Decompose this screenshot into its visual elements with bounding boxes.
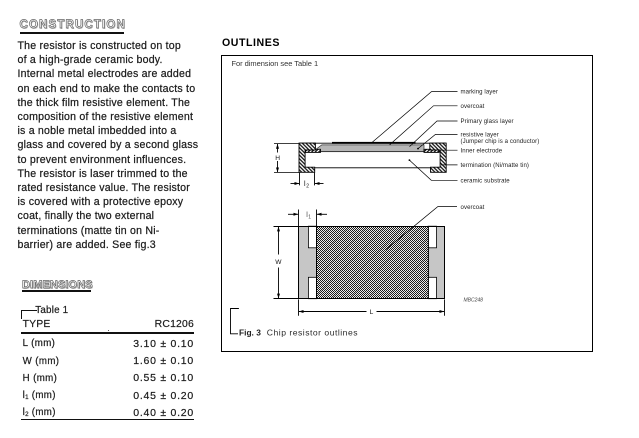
svg-text:overcoat: overcoat	[461, 104, 485, 110]
svg-text:1: 1	[308, 214, 311, 220]
svg-text:Chip resistor outlines: Chip resistor outlines	[267, 327, 358, 337]
svg-text:ceramic substrate: ceramic substrate	[461, 178, 511, 184]
svg-text:L: L	[370, 309, 374, 316]
svg-text:Primary glass layer: Primary glass layer	[461, 119, 514, 125]
svg-text:W: W	[275, 259, 282, 266]
svg-text:(Jumper chip is a conductor): (Jumper chip is a conductor)	[461, 139, 540, 145]
svg-text:2: 2	[306, 183, 309, 189]
svg-text:termination (Ni/matte tin): termination (Ni/matte tin)	[461, 163, 530, 169]
svg-text:Inner electrode: Inner electrode	[461, 148, 503, 154]
svg-text:MBC248: MBC248	[464, 297, 484, 303]
svg-text:H: H	[275, 155, 280, 162]
svg-text:marking layer: marking layer	[461, 90, 498, 96]
svg-text:resistive layer: resistive layer	[461, 133, 499, 139]
svg-text:overcoat: overcoat	[461, 205, 485, 211]
svg-text:Fig. 3: Fig. 3	[239, 327, 261, 337]
